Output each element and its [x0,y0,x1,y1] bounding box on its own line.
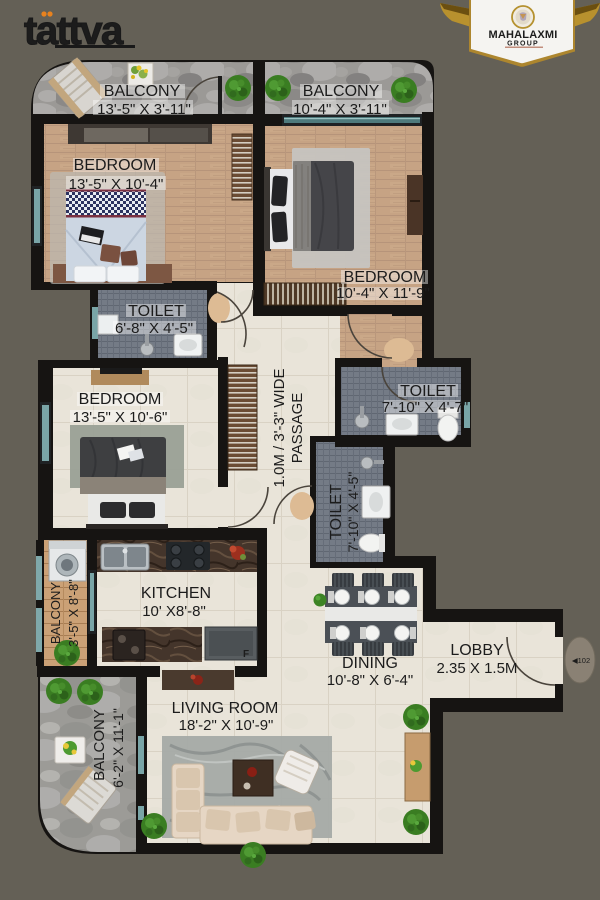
svg-text:BALCONY: BALCONY [48,582,63,644]
svg-text:PASSAGE: PASSAGE [289,393,306,464]
svg-text:13'-5" X 10'-6": 13'-5" X 10'-6" [73,409,168,426]
svg-text:BEDROOM: BEDROOM [79,391,162,408]
svg-text:18'-2" X 10'-9": 18'-2" X 10'-9" [179,717,274,734]
svg-text:F: F [243,649,249,660]
svg-text:KITCHEN: KITCHEN [141,585,211,602]
svg-text:10'-4" X 11'-9": 10'-4" X 11'-9" [336,285,430,302]
svg-text:TOILET: TOILET [128,303,184,320]
svg-text:3'-5" X 8'-8": 3'-5" X 8'-8" [66,579,81,647]
svg-text:1.0M / 3'-3" WIDE: 1.0M / 3'-3" WIDE [271,368,288,487]
svg-text:TOILET: TOILET [328,484,345,540]
svg-text:6'-2" X 11'-1": 6'-2" X 11'-1" [110,708,126,788]
svg-text:MAHALAXMI: MAHALAXMI [488,29,557,41]
svg-text:BALCONY: BALCONY [104,83,181,100]
svg-text:LIVING ROOM: LIVING ROOM [172,700,279,717]
svg-text:10' X8'-8": 10' X8'-8" [142,603,206,620]
svg-text:7'-10" X 4'-5": 7'-10" X 4'-5" [345,472,361,553]
svg-text:10'-4" X 3'-11": 10'-4" X 3'-11" [293,101,387,118]
svg-text:TOILET: TOILET [400,383,456,400]
svg-text:13'-5" X 3'-11": 13'-5" X 3'-11" [97,101,191,118]
svg-text:GROUP: GROUP [507,41,539,48]
svg-text:10'-8" X 6'-4": 10'-8" X 6'-4" [327,672,413,689]
svg-text:◀102: ◀102 [572,656,590,665]
svg-text:DINING: DINING [342,655,398,672]
svg-text:2.35 X 1.5M: 2.35 X 1.5M [437,660,518,677]
svg-text:BEDROOM: BEDROOM [74,157,157,174]
svg-text:6'-8" X 4'-5": 6'-8" X 4'-5" [115,320,193,337]
svg-text:BEDROOM: BEDROOM [344,269,427,286]
svg-text:BALCONY: BALCONY [303,83,380,100]
svg-text:13'-5" X 10'-4": 13'-5" X 10'-4" [69,176,164,193]
svg-text:LOBBY: LOBBY [450,642,504,659]
svg-text:7'-10" X 4'-7": 7'-10" X 4'-7" [382,399,468,416]
svg-text:BALCONY: BALCONY [91,709,108,781]
